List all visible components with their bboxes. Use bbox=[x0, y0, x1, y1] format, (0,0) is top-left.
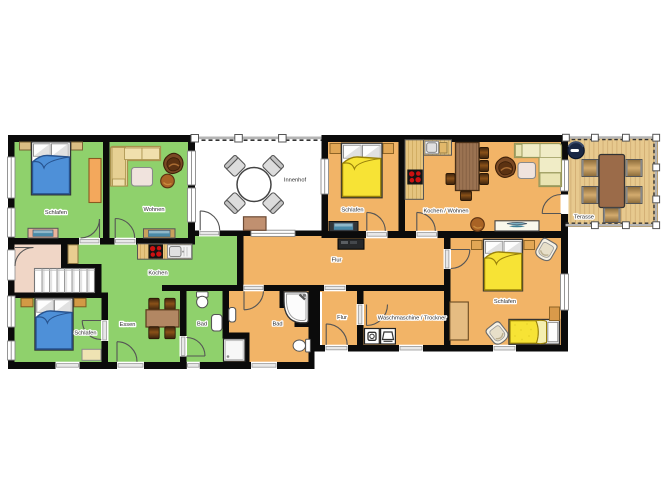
svg-text:Schlafen: Schlafen bbox=[494, 299, 516, 305]
svg-text:Essen: Essen bbox=[120, 322, 136, 328]
svg-text:Schlafen: Schlafen bbox=[341, 208, 363, 214]
svg-text:Flur: Flur bbox=[332, 258, 342, 264]
svg-text:Schlafen: Schlafen bbox=[74, 331, 96, 337]
svg-text:Waschmaschine / Trockner: Waschmaschine / Trockner bbox=[378, 316, 446, 322]
svg-text:Bad: Bad bbox=[272, 322, 282, 328]
svg-text:Terasse: Terasse bbox=[574, 215, 594, 221]
svg-text:Wohnen: Wohnen bbox=[143, 207, 164, 213]
svg-text:Schlafen: Schlafen bbox=[45, 210, 67, 216]
svg-text:Kochen / Wohnen: Kochen / Wohnen bbox=[423, 209, 468, 215]
svg-text:Innenhof: Innenhof bbox=[284, 178, 307, 184]
svg-text:Kochen: Kochen bbox=[148, 271, 167, 277]
svg-text:Flur: Flur bbox=[337, 315, 347, 321]
svg-text:Bad: Bad bbox=[197, 322, 207, 328]
